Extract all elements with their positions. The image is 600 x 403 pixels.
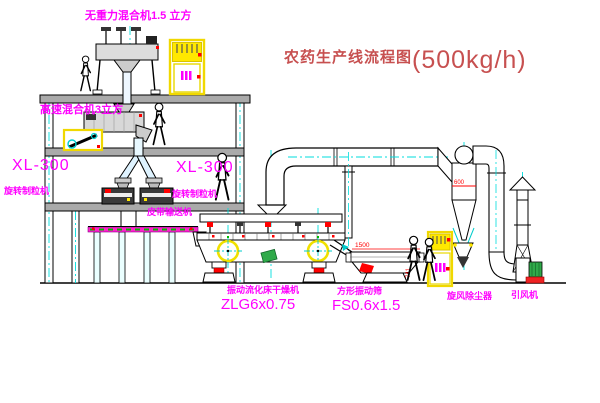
rotary-granulator-right (140, 178, 173, 204)
label-dryer-model: ZLG6x0.75 (221, 297, 295, 312)
label-sieve-name: 方形振动筛 (337, 287, 382, 296)
label-xl300-left: XL-300 (12, 158, 70, 174)
label-sieve-model: FS0.6x1.5 (332, 298, 400, 313)
diagram-title: 农药生产线流程图(500kg/h) (284, 46, 527, 75)
rain-cap (510, 177, 535, 190)
label-belt-conveyor: 皮带输送机 (147, 208, 192, 217)
exhaust-hood (258, 205, 286, 214)
title-text: 农药生产线流程图 (284, 49, 412, 66)
label-granulator-left: 旋转制粒机 (4, 187, 49, 196)
label-fan: 引风机 (511, 291, 538, 300)
fan-base (526, 277, 544, 283)
label-weightless-mixer: 无重力混合机1.5 立方 (85, 11, 191, 22)
label-xl300-mid: XL-300 (176, 160, 234, 176)
induced-draft-fan (516, 258, 544, 283)
cyclone-dust-collector: 600 (452, 142, 476, 272)
worker-floor2 (153, 103, 164, 144)
label-dryer-name: 振动流化床干燥机 (227, 286, 299, 295)
fan-suction-duct (473, 146, 516, 280)
dryer-flange (197, 233, 345, 240)
worker-roof (81, 56, 91, 91)
sieve-length-dim: 1500 (355, 242, 370, 249)
rotary-granulator-left (102, 178, 134, 204)
label-high-speed-mixer: 高速混合机3立方 (40, 105, 123, 116)
cyclone-dim-text: 600 (454, 180, 465, 186)
control-cabinet-roof (170, 40, 204, 94)
mixer-discharge-pipe (123, 72, 131, 105)
flow-diagram: 600 1500 (0, 0, 600, 403)
discharge-valve (457, 257, 469, 268)
roof-beam (40, 95, 250, 103)
y-splitter-pipe (118, 156, 157, 180)
title-capacity: (500kg/h) (412, 46, 527, 74)
dryer-cover (200, 214, 342, 222)
label-cyclone: 旋风除尘器 (447, 292, 492, 301)
label-granulator-mid: 旋转制粒机 (172, 190, 217, 199)
cyclone-inlet-reducer (438, 148, 452, 182)
belt-conveyor (88, 211, 206, 283)
cyclone-outlet-elbow (455, 146, 473, 164)
